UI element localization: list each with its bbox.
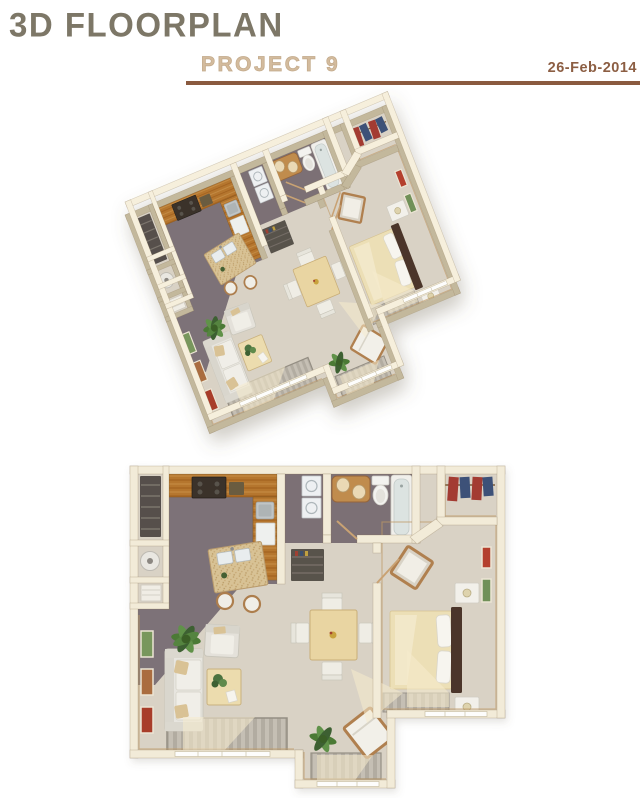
- topdown-floor: [130, 466, 505, 788]
- perspective-floorplan-render: [125, 91, 481, 456]
- floorplan-page: 3D FLOORPLAN PROJECT 9 26-Feb-2014: [0, 0, 640, 798]
- floorplan-scene: [0, 0, 640, 798]
- topdown-floorplan-render: [130, 466, 505, 788]
